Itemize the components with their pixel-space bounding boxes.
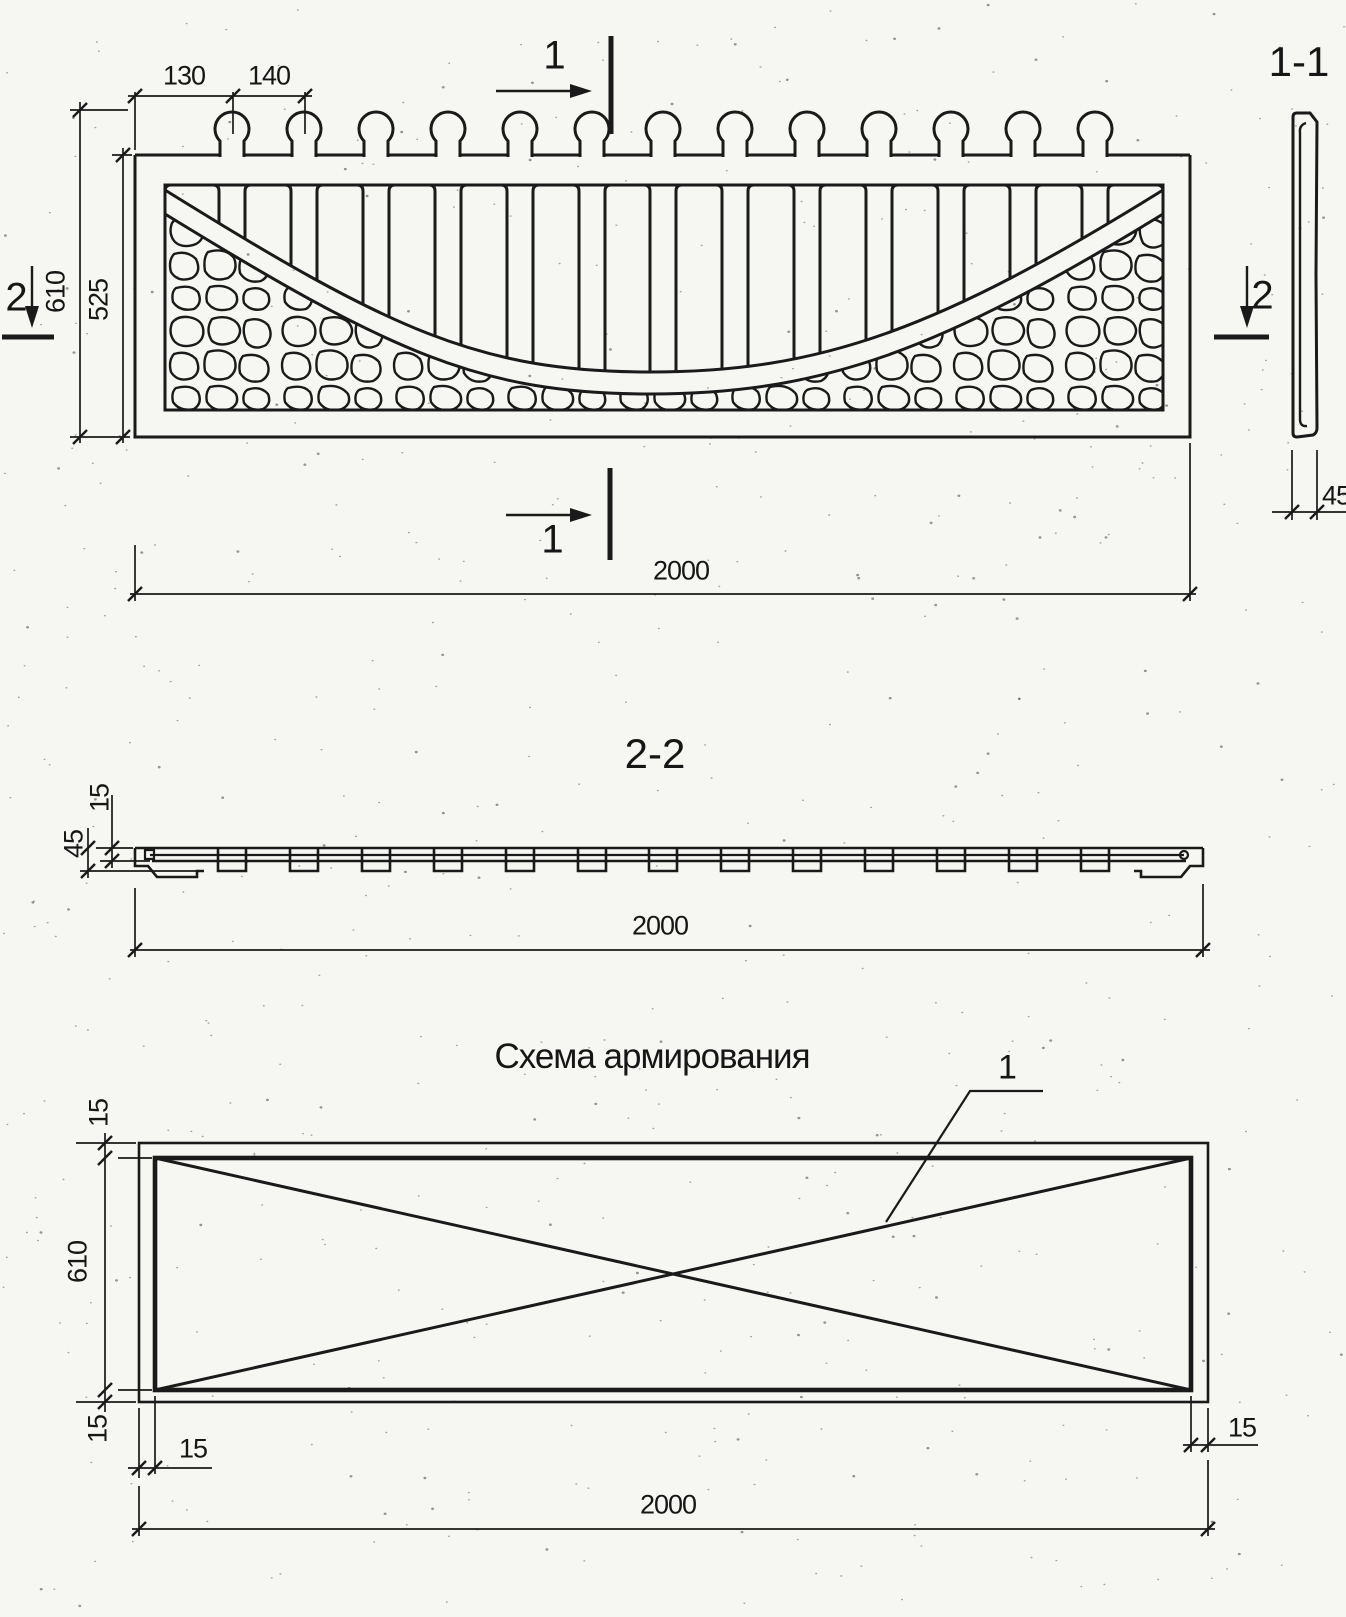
dim-section-1-1-45: 45 xyxy=(1322,481,1346,512)
dim-section-2-2-15: 15 xyxy=(85,784,116,812)
dim-scheme-width-2000: 2000 xyxy=(640,1490,696,1521)
stone-infill xyxy=(165,214,1163,410)
cut-label-2-right: 2 xyxy=(1251,274,1272,319)
strip-right-end xyxy=(1134,848,1203,877)
dim-front-width-2000: 2000 xyxy=(653,556,709,587)
reinforcement-scheme-view xyxy=(139,1091,1208,1402)
dim-front-140: 140 xyxy=(248,61,290,92)
dim-scheme-15-top: 15 xyxy=(84,1099,115,1127)
dim-front-height-610: 610 xyxy=(41,271,72,313)
drawing-canvas xyxy=(0,0,1346,1617)
cut-label-2-left: 2 xyxy=(5,276,26,321)
blueprint-sheet: 130 140 1 1-1 610 525 2 2 45 1 2000 2-2 … xyxy=(0,0,1346,1617)
strip-rebar xyxy=(145,850,1184,859)
dim-scheme-15-left: 15 xyxy=(179,1434,207,1465)
dim-scheme-height-610: 610 xyxy=(63,1241,94,1283)
rebar-callout-label: 1 xyxy=(998,1049,1016,1088)
reinforcement-scheme-title: Схема армирования xyxy=(494,1037,809,1077)
section-1-1-view xyxy=(1293,113,1317,437)
slab-outline xyxy=(1293,113,1317,437)
section-2-2-view xyxy=(135,848,1203,877)
picket-sections xyxy=(218,848,1109,871)
scheme-rebar-diagonals xyxy=(155,1158,1191,1390)
dim-scheme-15-bottom: 15 xyxy=(83,1415,114,1443)
dim-front-height-525: 525 xyxy=(84,279,115,321)
cut-label-1-bottom: 1 xyxy=(541,518,562,563)
section-2-2-title: 2-2 xyxy=(625,730,686,778)
dim-scheme-15-right: 15 xyxy=(1228,1413,1256,1444)
front-view xyxy=(135,112,1190,437)
dim-front-130: 130 xyxy=(163,61,205,92)
slab-rebar xyxy=(1300,123,1307,426)
section-1-1-title: 1-1 xyxy=(1269,38,1330,86)
cut-label-1-top: 1 xyxy=(543,34,564,79)
dim-section-2-2-45: 45 xyxy=(59,830,90,858)
dim-section-2-2-2000: 2000 xyxy=(632,911,688,942)
panel-knobs xyxy=(215,112,1112,157)
